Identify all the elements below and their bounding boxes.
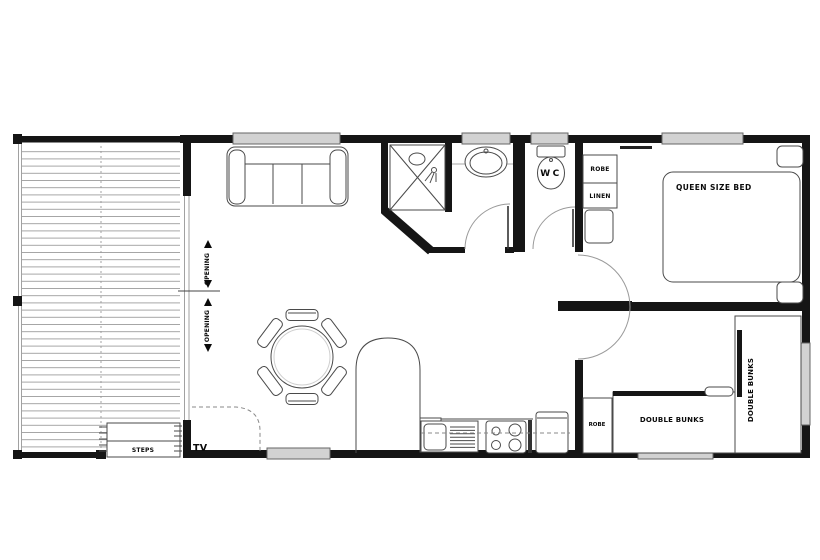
bunk-room: ROBE DOUBLE BUNKS DOUBLE BUNKS (583, 316, 801, 453)
wall-bathroom-west (381, 143, 388, 213)
deck-top-edge (14, 136, 183, 143)
deck-post (13, 450, 22, 459)
bedside-table (777, 146, 803, 167)
dining-table-top (271, 326, 333, 388)
sink-drainer (450, 427, 475, 447)
arrow-down-icon (204, 344, 212, 352)
window-wc (531, 133, 568, 144)
stove (486, 421, 526, 453)
floor-plan: STEPS (0, 0, 820, 560)
steps: STEPS (99, 423, 182, 457)
wall-bedroom-west (575, 143, 583, 252)
chair (286, 310, 318, 321)
tv-unit: TV (192, 407, 260, 454)
window-bedroom (662, 133, 743, 144)
vanity (452, 147, 513, 177)
opening-lower-label: OPENING (204, 310, 211, 342)
deck-post (13, 296, 22, 306)
bedside-table (777, 282, 803, 303)
kitchen (356, 338, 570, 453)
opening-annotations: OPENING OPENING (204, 240, 212, 352)
window-living (233, 133, 340, 144)
wall-shelf-line (620, 146, 652, 149)
wall-bath-door-jamb (505, 247, 514, 253)
wall-bathroom-chamfer (384, 210, 431, 251)
couch-arm-left (229, 150, 245, 204)
wc-door-arc (533, 207, 575, 249)
kitchen-end-panel (528, 420, 532, 453)
robe-bunkroom-label: ROBE (589, 422, 606, 428)
tv-label: TV (193, 443, 208, 454)
linen-label: LINEN (589, 193, 610, 200)
double-bunks-v-label: DOUBLE BUNKS (747, 358, 755, 422)
arrow-up-icon (204, 240, 212, 248)
wall-bedroom-bunk (630, 302, 802, 311)
wall-shower-divider (445, 143, 452, 212)
deck-post (13, 134, 22, 144)
robe-bedroom-label: ROBE (590, 166, 609, 173)
floor-plan-drawing: STEPS (0, 0, 820, 560)
wall-bunkroom-west (575, 360, 583, 455)
shower-drain (409, 153, 425, 165)
wc-room: WC (537, 146, 565, 189)
shower (390, 145, 445, 210)
bunk-pillow (705, 387, 733, 396)
wall-left-lower (183, 420, 191, 458)
double-bunks-h-label: DOUBLE BUNKS (640, 416, 704, 424)
arrow-up-icon (204, 298, 212, 306)
bedroom-door-leaf (558, 301, 632, 311)
dining-table (256, 310, 348, 405)
toilet-cistern (537, 146, 565, 157)
steps-label: STEPS (132, 447, 154, 454)
wall-bathroom-south (428, 247, 465, 253)
window-bathroom (462, 133, 510, 144)
sink-basin (424, 424, 446, 450)
kitchen-bench-curved (356, 338, 420, 453)
wall-wc-west (513, 143, 525, 252)
cabinet (585, 210, 613, 243)
wall-left-upper (183, 135, 191, 196)
deck (13, 134, 183, 459)
couch (227, 147, 348, 206)
chair (286, 394, 318, 405)
queen-bedroom: ROBE LINEN QUEEN SIZE BED (583, 146, 803, 303)
bunk-side-edge (737, 330, 742, 397)
kitchen-sink (421, 421, 478, 452)
window-dining (267, 448, 330, 459)
deck-bottom-edge (18, 452, 100, 458)
wc-label: WC (540, 169, 562, 179)
bathroom-door-arc (465, 204, 510, 249)
double-bunk-vertical (735, 316, 801, 453)
couch-arm-right (330, 150, 346, 204)
queen-bed-label: QUEEN SIZE BED (676, 183, 752, 192)
